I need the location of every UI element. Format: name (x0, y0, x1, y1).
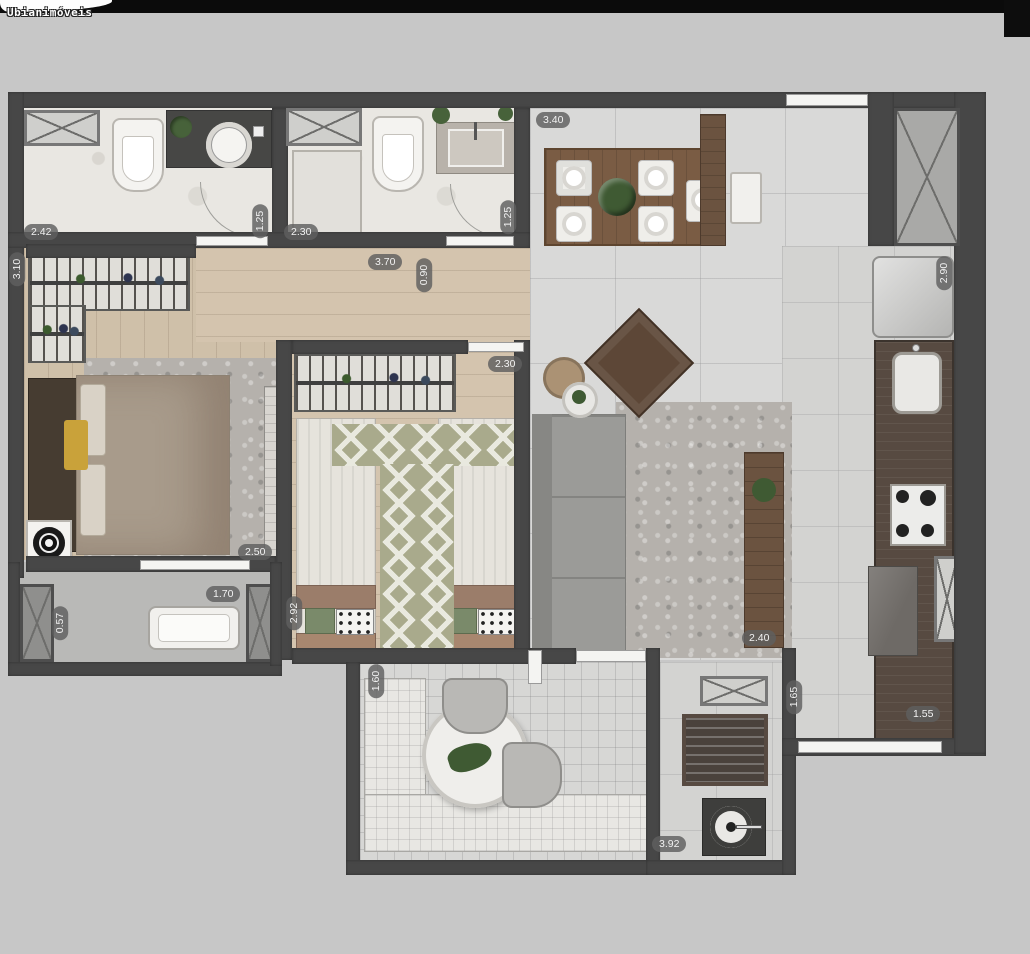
terrace-door-sill (576, 650, 646, 662)
bathroom1-window (24, 110, 100, 146)
corner-block (1004, 0, 1030, 37)
kitchen-fridge (872, 256, 954, 338)
wall-grill-right (782, 648, 796, 875)
kitchen-sliding-door (798, 741, 942, 753)
bedroom2-wardrobe (294, 354, 456, 412)
living-console-plant (752, 478, 776, 502)
bathroom1-round-sink (206, 122, 252, 168)
kitchen-sink (892, 352, 942, 414)
bathroom2-shower (292, 150, 362, 234)
bedroom1-balcony-door (140, 560, 250, 570)
bathroom1-soap-dish (253, 126, 264, 137)
hallway-floor (196, 248, 530, 342)
grill-sink-faucet (736, 825, 762, 829)
terrace-chair-top (442, 678, 508, 734)
wall-bedroom1-top (26, 244, 196, 258)
bedroom1-wardrobe-side (28, 305, 86, 363)
bathroom2-toilet-seat (382, 134, 414, 182)
balcony1-pillar-left (20, 584, 54, 662)
wall-bedroom2-top (292, 340, 468, 354)
bathroom1-toilet-seat (122, 136, 154, 182)
bedroom2-runner-top (332, 424, 514, 466)
bedroom2-bed-left-green-pillow (305, 608, 335, 634)
dining-plate-1 (562, 166, 586, 190)
kitchen-burner-2 (920, 490, 936, 506)
kitchen-burner-3 (896, 524, 909, 537)
grill-barbecue (682, 714, 768, 786)
wall-balcony1-bottom (8, 662, 282, 676)
living-sofa-backrest (532, 414, 552, 658)
bathroom2-plant-2 (498, 106, 513, 121)
bedroom2-bed-right-dot-pillow (478, 609, 516, 635)
bathroom2-faucet (474, 122, 477, 140)
bathroom2-door-sill (446, 236, 514, 246)
kitchen-faucet (912, 344, 920, 352)
dining-sideboard (700, 114, 726, 246)
watermark-text: Ubianimóveis (7, 6, 92, 19)
grill-shaft (700, 676, 768, 706)
bathroom2-plant-1 (432, 106, 450, 124)
bathroom1-plant (170, 116, 192, 138)
kitchen-burner-4 (921, 524, 934, 537)
dining-plate-3 (562, 212, 586, 236)
bedroom2-door-sill (468, 342, 524, 352)
bedroom2-runner-center (380, 464, 454, 658)
wall-balcony1-right (270, 562, 282, 666)
dining-centerpiece-plant (598, 178, 636, 216)
bedroom1-pillow-2 (80, 464, 106, 536)
kitchen-burner-1 (896, 490, 909, 503)
kitchen-shaft (894, 108, 960, 246)
wall-bedroom2-right (514, 340, 530, 660)
terrace-door-leaf (528, 650, 542, 684)
dining-plate-2 (644, 166, 668, 190)
wall-terrace-bottom (346, 860, 660, 875)
wall-shaft-left (868, 92, 894, 246)
wall-bedroom2-bottom (292, 648, 530, 664)
living-side-table-plant (572, 390, 586, 404)
terrace-chair-right (502, 742, 562, 808)
bathroom2-window (286, 108, 362, 146)
dining-plate-4 (644, 212, 668, 236)
wall-grill-left (646, 648, 660, 875)
bathroom1-door-sill (196, 236, 268, 246)
bedroom2-bed-left-dot-pillow (336, 609, 374, 635)
wall-grill-bottom (646, 860, 796, 875)
bedroom2-bed-left-blanket (296, 585, 376, 609)
wall-left (8, 92, 24, 578)
wall-balcony1-left (8, 562, 20, 668)
floor-plan-page: Ubianimóveis (0, 0, 1030, 954)
wall-terrace-left (346, 662, 360, 875)
top-black-bar (0, 0, 1030, 13)
dining-window (786, 94, 868, 106)
kitchen-cabinet (868, 566, 918, 656)
wall-bath2-right (514, 108, 530, 244)
balcony1-ac-panel (158, 614, 230, 642)
bedroom1-speaker-dot (45, 539, 53, 547)
dining-chair-right (730, 172, 762, 224)
bedroom1-throw-pillow (64, 420, 88, 470)
bedroom1-wardrobe-top (28, 255, 190, 311)
grill-sink-drain (726, 822, 736, 832)
